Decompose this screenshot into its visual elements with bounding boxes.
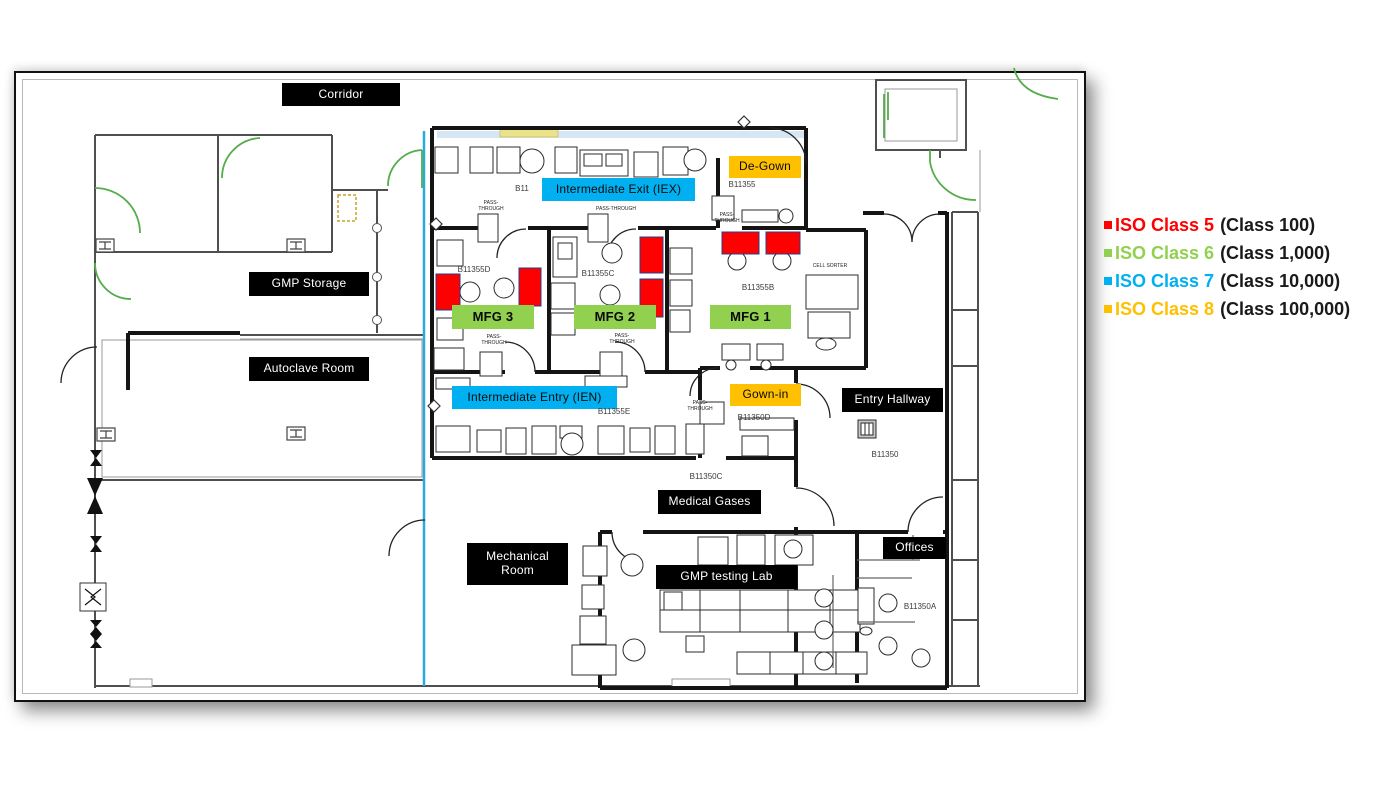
legend-item-iso7: ISO Class 7 (Class 10,000): [1104, 267, 1350, 295]
room-number-b11355c: B11355C: [572, 269, 624, 278]
label-autoclave-room: Autoclave Room: [249, 357, 369, 381]
room-number-b11355: B11355: [716, 180, 768, 189]
annotation-pass-through: PASS-THROUGH: [477, 334, 511, 346]
dashed-equipment-outline: [338, 195, 356, 221]
annotation-pass-through: PASS-THROUGH: [683, 400, 717, 412]
annotation-pass-through: PASS-THROUGH: [605, 333, 639, 345]
label-entry-hallway: Entry Hallway: [842, 388, 943, 412]
legend-label-iso8: ISO Class 8: [1115, 299, 1214, 320]
label-mfg-1: MFG 1: [710, 305, 791, 329]
label-mechanical-room: Mechanical Room: [467, 543, 568, 585]
iso-class-legend: ISO Class 5 (Class 100) ISO Class 6 (Cla…: [1104, 211, 1350, 323]
legend-label-iso6: ISO Class 6: [1115, 243, 1214, 264]
label-de-gown: De-Gown: [729, 156, 801, 178]
legend-bullet-iso8: [1104, 305, 1112, 313]
slide-canvas: Corridor GMP Storage Autoclave Room Entr…: [0, 0, 1400, 788]
legend-item-iso5: ISO Class 5 (Class 100): [1104, 211, 1350, 239]
room-number-b11355d: B11355D: [448, 265, 500, 274]
annotation-pass-through: PASS-THROUGH: [712, 212, 742, 224]
legend-detail-iso7: (Class 10,000): [1220, 271, 1340, 292]
label-corridor: Corridor: [282, 83, 400, 106]
iso7-wall-band: [437, 131, 806, 138]
legend-bullet-iso6: [1104, 249, 1112, 257]
label-intermediate-entry: Intermediate Entry (IEN): [452, 386, 617, 409]
room-number-b11350d: B11350D: [728, 413, 780, 422]
legend-detail-iso5: (Class 100): [1220, 215, 1315, 236]
label-gown-in: Gown-in: [730, 384, 801, 406]
legend-item-iso8: ISO Class 8 (Class 100,000): [1104, 295, 1350, 323]
room-number-b11350: B11350: [859, 450, 911, 459]
room-number-b11355a-partial: B11: [514, 184, 530, 193]
iso8-wall-segment: [500, 129, 558, 137]
floorplan-drawing: [0, 0, 1400, 788]
label-mfg-3: MFG 3: [452, 305, 534, 329]
legend-detail-iso6: (Class 1,000): [1220, 243, 1330, 264]
legend-label-iso5: ISO Class 5: [1115, 215, 1214, 236]
label-gmp-storage: GMP Storage: [249, 272, 369, 296]
legend-item-iso6: ISO Class 6 (Class 1,000): [1104, 239, 1350, 267]
annotation-pass-through: PASS-THROUGH: [588, 206, 644, 212]
room-number-b11355e: B11355E: [588, 407, 640, 416]
valve-markers: [80, 450, 106, 648]
label-mfg-2: MFG 2: [574, 305, 656, 329]
legend-bullet-iso5: [1104, 221, 1112, 229]
annotation-cell-sorter: CELL SORTER: [800, 263, 860, 269]
label-medical-gases: Medical Gases: [658, 490, 761, 514]
legend-detail-iso8: (Class 100,000): [1220, 299, 1350, 320]
legend-bullet-iso7: [1104, 277, 1112, 285]
legend-label-iso7: ISO Class 7: [1115, 271, 1214, 292]
label-intermediate-exit: Intermediate Exit (IEX): [542, 178, 695, 201]
room-number-b11355b: B11355B: [732, 283, 784, 292]
label-gmp-testing-lab: GMP testing Lab: [656, 565, 797, 589]
annotation-pass-through: PASS-THROUGH: [474, 200, 508, 212]
room-number-b11350c: B11350C: [680, 472, 732, 481]
label-offices: Offices: [883, 537, 946, 559]
room-number-b11350a: B11350A: [894, 602, 946, 611]
